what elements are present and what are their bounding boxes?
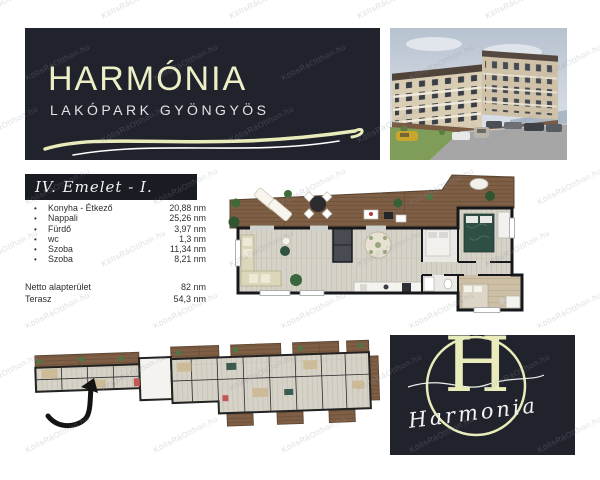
room-row: • Nappali 25,26 nm xyxy=(25,213,206,223)
level-floorplan xyxy=(22,336,382,456)
room-area: 1,3 nm xyxy=(154,234,206,244)
unit-floorplan xyxy=(226,170,576,330)
room-area: 11,34 nm xyxy=(154,244,206,254)
bullet-icon: • xyxy=(25,225,48,234)
floor-banner: IV. Emelet - I. xyxy=(25,174,197,200)
room-row: • Szoba 8,21 nm xyxy=(25,254,206,264)
room-area: 3,97 nm xyxy=(154,224,206,234)
summary-row: Terasz 54,3 nm xyxy=(25,294,206,306)
brand-subtitle: LAKÓPARK GYÖNGYÖS xyxy=(50,102,270,118)
room-area: 25,26 nm xyxy=(154,213,206,223)
room-name: Fürdő xyxy=(48,224,154,234)
bullet-icon: • xyxy=(25,204,48,213)
room-name: Szoba xyxy=(48,244,154,254)
bullet-icon: • xyxy=(25,214,48,223)
floor-label: IV. Emelet - I. xyxy=(25,178,153,196)
summary-name: Netto alapterület xyxy=(25,282,150,292)
room-name: Szoba xyxy=(48,254,154,264)
logo-panel: H Harmonia xyxy=(390,335,575,455)
summary-name: Terasz xyxy=(25,294,150,304)
summary-list: Netto alapterület 82 nm Terasz 54,3 nm xyxy=(25,282,206,305)
bullet-icon: • xyxy=(25,245,48,254)
room-name: Konyha - Étkező xyxy=(48,203,154,213)
room-list: • Konyha - Étkező 20,88 nm • Nappali 25,… xyxy=(25,203,206,265)
room-row: • Fürdő 3,97 nm xyxy=(25,224,206,234)
logo-monogram: H xyxy=(444,335,510,403)
summary-area: 82 nm xyxy=(150,282,206,292)
room-row: • Szoba 11,34 nm xyxy=(25,244,206,254)
brand-panel: HARMÓNIA LAKÓPARK GYÖNGYÖS xyxy=(25,28,380,160)
room-area: 20,88 nm xyxy=(154,203,206,213)
room-row: • Konyha - Étkező 20,88 nm xyxy=(25,203,206,213)
room-name: Nappali xyxy=(48,213,154,223)
building-photo xyxy=(390,28,567,160)
summary-area: 54,3 nm xyxy=(150,294,206,304)
room-area: 8,21 nm xyxy=(154,254,206,264)
room-name: wc xyxy=(48,234,154,244)
brand-name: HARMÓNIA xyxy=(48,60,247,99)
room-row: • wc 1,3 nm xyxy=(25,234,206,244)
bullet-icon: • xyxy=(25,255,48,264)
bullet-icon: • xyxy=(25,235,48,244)
swoosh-icon xyxy=(37,122,369,160)
flyer-canvas: HARMÓNIA LAKÓPARK GYÖNGYÖS xyxy=(0,0,600,480)
summary-row: Netto alapterület 82 nm xyxy=(25,282,206,294)
